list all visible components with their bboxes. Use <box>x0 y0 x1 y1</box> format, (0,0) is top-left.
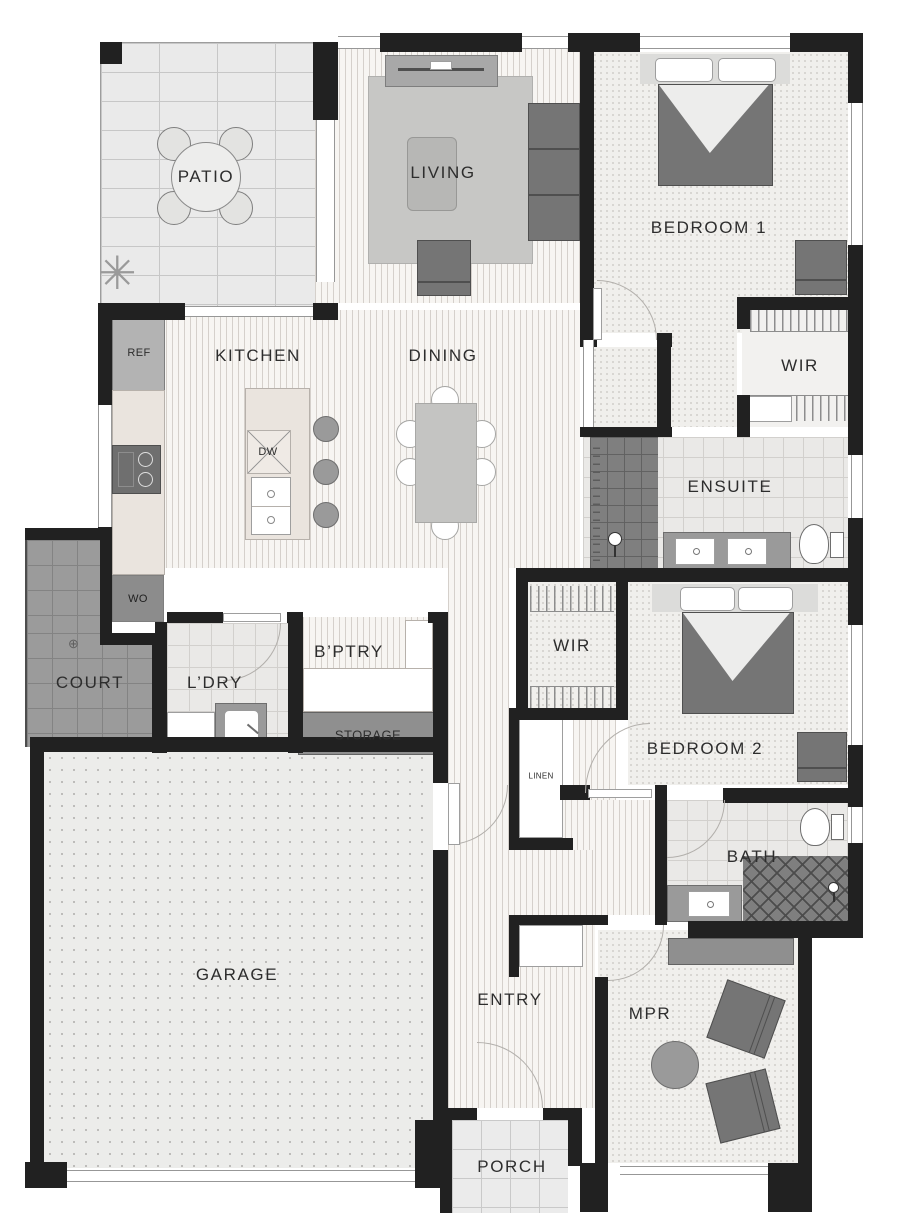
bath-shower-rose-icon <box>828 882 839 893</box>
bed1 <box>658 84 773 186</box>
room-label-storage: STORAGE <box>335 728 401 743</box>
opening <box>583 340 594 427</box>
garage-door <box>67 1170 415 1182</box>
window <box>98 405 112 527</box>
wall <box>737 395 750 437</box>
room-label-wir1: WIR <box>781 356 819 376</box>
entry-closet <box>519 925 583 967</box>
appliance-label-wo: WO <box>128 593 148 605</box>
sliding-door <box>316 120 335 282</box>
wall <box>380 33 522 52</box>
ensuite-shower-hose <box>614 546 616 557</box>
ensuite-toilet <box>799 524 829 564</box>
room-label-bedroom2: BEDROOM 2 <box>647 739 763 759</box>
bed1-hall-floor <box>592 347 657 427</box>
wall <box>433 850 448 1120</box>
ensuite-basin <box>675 538 715 565</box>
kitchen-sink <box>251 477 291 535</box>
court-drain-icon: ⊕ <box>68 637 79 650</box>
bed2 <box>682 612 794 714</box>
wall <box>30 750 44 1180</box>
bed1-chair <box>795 240 847 295</box>
wall <box>848 245 863 455</box>
window <box>851 625 863 745</box>
room-label-court: COURT <box>56 673 124 693</box>
wall <box>568 1108 582 1166</box>
wall <box>768 1163 812 1212</box>
window <box>851 455 863 518</box>
room-label-garage: GARAGE <box>196 965 278 985</box>
wall <box>25 1162 67 1188</box>
ensuite-basin <box>727 538 767 565</box>
wall <box>848 33 863 103</box>
wall <box>509 915 608 925</box>
tv-unit <box>385 55 498 87</box>
wall <box>509 708 628 720</box>
stool <box>313 459 339 485</box>
room-label-bedroom1: BEDROOM 1 <box>651 218 767 238</box>
wall <box>415 1120 448 1188</box>
dining-table <box>415 403 477 523</box>
wir2-rack-top <box>530 586 614 612</box>
wall <box>100 540 112 645</box>
wir2-rack-bottom <box>530 686 614 710</box>
ensuite-shower-rose-icon <box>608 532 622 546</box>
wall <box>580 427 672 437</box>
bath-shower-hose <box>833 893 835 902</box>
appliance-label-dw: DW <box>258 446 277 458</box>
window <box>522 36 568 49</box>
wall <box>288 612 303 753</box>
room-label-laundry: L’DRY <box>187 673 243 693</box>
wall <box>580 33 594 333</box>
armchair <box>417 240 471 296</box>
bath-toilet <box>800 808 830 846</box>
wall <box>98 303 112 405</box>
floor-plan: ✳ <box>0 0 901 1227</box>
room-label-linen: LINEN <box>528 772 553 781</box>
wall <box>100 303 185 320</box>
wall <box>313 42 338 120</box>
room-label-mpr: MPR <box>629 1004 672 1024</box>
wall <box>313 303 338 320</box>
garage-door-leaf <box>448 783 460 845</box>
window <box>640 36 790 49</box>
bed2-chair <box>797 732 847 782</box>
ensuite-shower <box>590 437 658 568</box>
wall <box>25 528 112 540</box>
wall <box>516 568 528 715</box>
room-label-bptry: B’PTRY <box>314 642 384 662</box>
wall <box>167 612 223 623</box>
room-label-entry: ENTRY <box>477 990 542 1010</box>
wall <box>433 612 448 737</box>
mpr-cabinet <box>668 938 794 965</box>
laundry-door-leaf <box>223 613 281 622</box>
kitchen-dining-floor <box>112 310 580 568</box>
wall <box>516 568 863 582</box>
court-floor-upper <box>25 540 100 645</box>
wall <box>723 788 863 803</box>
room-label-living: LIVING <box>410 163 475 183</box>
bed2-pillow <box>680 587 735 611</box>
wall <box>509 838 573 850</box>
window <box>338 36 380 49</box>
room-label-bath: BATH <box>727 847 777 867</box>
room-label-patio: PATIO <box>178 167 235 187</box>
stool <box>313 502 339 528</box>
bed1-pillow <box>718 58 776 82</box>
room-label-ensuite: ENSUITE <box>688 477 773 497</box>
bath-basin <box>688 891 730 917</box>
plant-icon: ✳ <box>98 250 137 296</box>
wall <box>657 333 671 437</box>
stool <box>313 416 339 442</box>
window <box>185 306 313 317</box>
bedroom1-door-leaf <box>593 288 602 340</box>
wall <box>433 737 448 783</box>
wir1-shelf <box>748 396 792 422</box>
bath-toilet-cistern <box>831 814 844 840</box>
wall <box>509 915 519 977</box>
bed1-pillow <box>655 58 713 82</box>
wall <box>509 708 519 850</box>
wall <box>688 921 863 938</box>
wall <box>655 785 667 925</box>
wir1-rack-top <box>750 310 848 332</box>
wall <box>100 42 122 64</box>
bed2-pillow <box>738 587 793 611</box>
bed2-head <box>652 584 818 612</box>
ensuite-toilet-cistern <box>830 532 844 558</box>
wall <box>595 977 608 1163</box>
bptry-bench-bottom <box>303 668 433 712</box>
wall <box>155 622 167 753</box>
bedroom2-door-leaf <box>588 789 652 798</box>
sofa <box>528 103 580 241</box>
window <box>620 1166 768 1175</box>
mpr-ottoman <box>651 1041 699 1089</box>
ensuite-shower-shelf-ticks <box>593 445 600 561</box>
wall <box>580 1163 608 1212</box>
bed1-passage-floor <box>670 310 737 427</box>
front-door-opening <box>477 1108 543 1120</box>
room-label-wir2: WIR <box>553 636 591 656</box>
cooktop <box>112 445 161 494</box>
garage-floor <box>44 752 433 1168</box>
room-label-kitchen: KITCHEN <box>215 346 301 366</box>
room-label-dining: DINING <box>408 346 477 366</box>
wall <box>798 930 812 1163</box>
wall <box>742 297 863 310</box>
window <box>851 103 863 245</box>
wall <box>568 33 640 52</box>
window <box>851 807 863 843</box>
tv-bracket <box>430 61 452 70</box>
wall <box>616 582 628 715</box>
room-label-porch: PORCH <box>477 1157 546 1177</box>
appliance-label-ref: REF <box>127 347 150 359</box>
